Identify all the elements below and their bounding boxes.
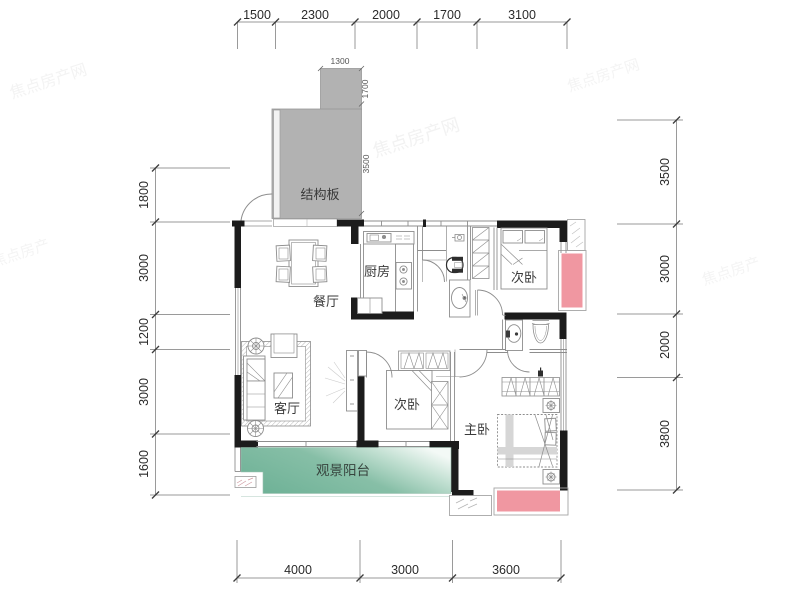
svg-text:1200: 1200: [137, 318, 151, 346]
svg-text:1600: 1600: [137, 450, 151, 478]
svg-text:2300: 2300: [301, 8, 329, 22]
svg-text:结构板: 结构板: [300, 187, 339, 202]
svg-text:3000: 3000: [391, 563, 419, 577]
svg-text:1300: 1300: [331, 56, 350, 66]
svg-text:客厅: 客厅: [274, 401, 300, 416]
svg-text:4000: 4000: [284, 563, 312, 577]
svg-text:3000: 3000: [137, 378, 151, 406]
svg-text:2000: 2000: [372, 8, 400, 22]
svg-text:次卧: 次卧: [511, 270, 537, 285]
svg-text:观景阳台: 观景阳台: [316, 463, 370, 478]
svg-text:1500: 1500: [243, 8, 271, 22]
svg-text:3100: 3100: [508, 8, 536, 22]
svg-text:2000: 2000: [658, 331, 672, 359]
svg-text:3000: 3000: [658, 255, 672, 283]
svg-text:1700: 1700: [360, 79, 370, 98]
svg-text:3000: 3000: [137, 254, 151, 282]
svg-text:厨房: 厨房: [364, 264, 390, 279]
svg-text:次卧: 次卧: [394, 397, 420, 412]
svg-text:餐厅: 餐厅: [313, 294, 339, 309]
svg-text:3500: 3500: [361, 154, 371, 173]
svg-text:3800: 3800: [658, 420, 672, 448]
svg-text:1800: 1800: [137, 181, 151, 209]
svg-text:主卧: 主卧: [464, 422, 490, 437]
svg-text:3600: 3600: [492, 563, 520, 577]
svg-text:1700: 1700: [433, 8, 461, 22]
svg-text:3500: 3500: [658, 158, 672, 186]
